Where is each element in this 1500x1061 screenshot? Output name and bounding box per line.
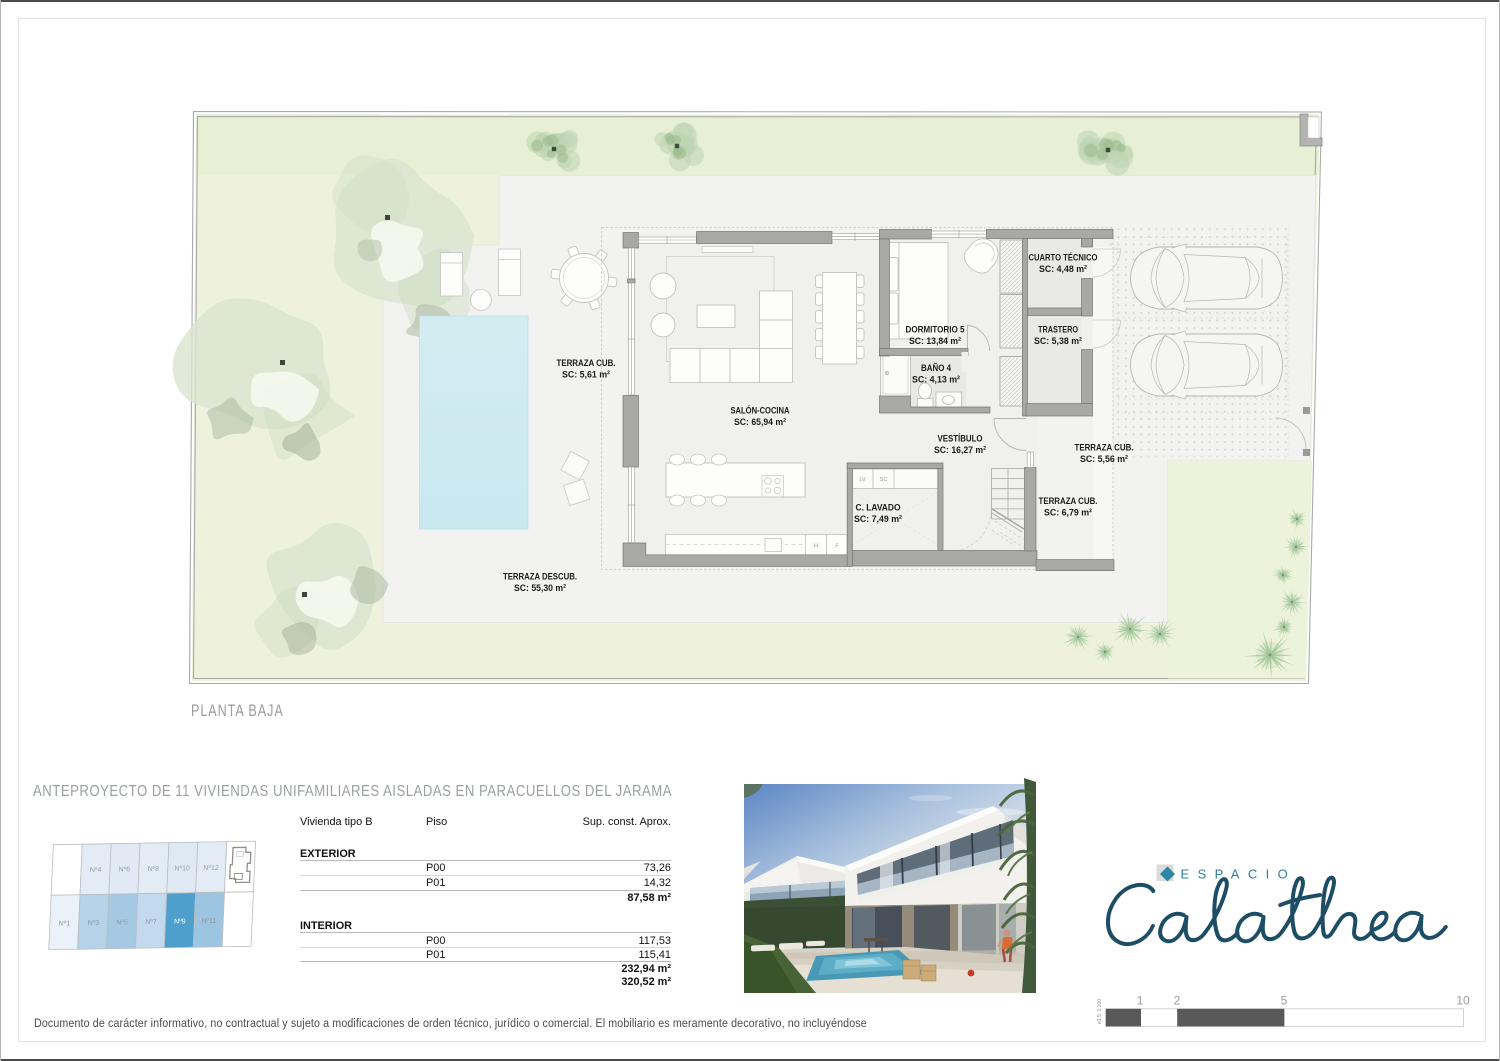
svg-text:Nº3: Nº3 xyxy=(87,920,99,927)
svg-text:Nº11: Nº11 xyxy=(201,918,216,925)
svg-text:SC: 5,56 m²: SC: 5,56 m² xyxy=(1080,454,1128,464)
svg-text:BAÑO 4: BAÑO 4 xyxy=(921,363,952,373)
svg-text:LV: LV xyxy=(859,477,866,483)
svg-text:Nº7: Nº7 xyxy=(145,919,157,926)
svg-text:SC: 5,38 m²: SC: 5,38 m² xyxy=(1034,336,1082,346)
svg-text:DORMITORIO 5: DORMITORIO 5 xyxy=(906,325,965,335)
svg-text:Nº10: Nº10 xyxy=(174,865,190,872)
svg-text:10: 10 xyxy=(1456,994,1470,1008)
svg-text:SC: 6,79 m²: SC: 6,79 m² xyxy=(1044,508,1092,518)
svg-text:H: H xyxy=(814,544,818,550)
svg-text:TERRAZA CUB.: TERRAZA CUB. xyxy=(557,358,616,368)
svg-text:C. LAVADO: C. LAVADO xyxy=(856,503,901,513)
svg-text:Nº1: Nº1 xyxy=(58,920,70,927)
svg-text:SALÓN-COCINA: SALÓN-COCINA xyxy=(731,405,790,416)
svg-text:SC: 7,49 m²: SC: 7,49 m² xyxy=(854,514,902,524)
svg-text:Nº8: Nº8 xyxy=(147,866,159,873)
svg-text:TRASTERO: TRASTERO xyxy=(1038,325,1078,335)
svg-text:Nº6: Nº6 xyxy=(118,866,130,873)
svg-text:SC: SC xyxy=(880,477,888,483)
svg-text:CUARTO TÉCNICO: CUARTO TÉCNICO xyxy=(1029,252,1098,263)
svg-text:SC: 55,30 m²: SC: 55,30 m² xyxy=(514,583,566,593)
svg-text:Nº9: Nº9 xyxy=(174,918,186,925)
svg-text:TERRAZA CUB.: TERRAZA CUB. xyxy=(1075,443,1134,453)
svg-text:VESTÍBULO: VESTÍBULO xyxy=(938,433,983,444)
svg-text:TERRAZA CUB.: TERRAZA CUB. xyxy=(1039,496,1098,506)
svg-text:SC: 13,84 m²: SC: 13,84 m² xyxy=(909,336,961,346)
svg-text:2: 2 xyxy=(1174,994,1181,1008)
svg-text:SC: 16,27 m²: SC: 16,27 m² xyxy=(934,445,986,455)
svg-text:5: 5 xyxy=(1281,994,1288,1008)
svg-text:Nº5: Nº5 xyxy=(116,919,128,926)
svg-text:SC: 65,94 m²: SC: 65,94 m² xyxy=(734,417,786,427)
svg-text:TERRAZA DESCUB.: TERRAZA DESCUB. xyxy=(503,572,577,582)
svg-text:Nº4: Nº4 xyxy=(90,867,102,874)
svg-text:SC: 4,48 m²: SC: 4,48 m² xyxy=(1039,264,1087,274)
svg-text:1: 1 xyxy=(1137,994,1144,1008)
svg-text:e1:5, 1:100: e1:5, 1:100 xyxy=(1097,999,1103,1024)
svg-text:SC: 4,13 m²: SC: 4,13 m² xyxy=(912,375,960,385)
svg-text:ESPACIO: ESPACIO xyxy=(1181,867,1297,882)
svg-text:SC: 5,61 m²: SC: 5,61 m² xyxy=(562,370,610,380)
svg-text:Nº12: Nº12 xyxy=(203,865,219,872)
